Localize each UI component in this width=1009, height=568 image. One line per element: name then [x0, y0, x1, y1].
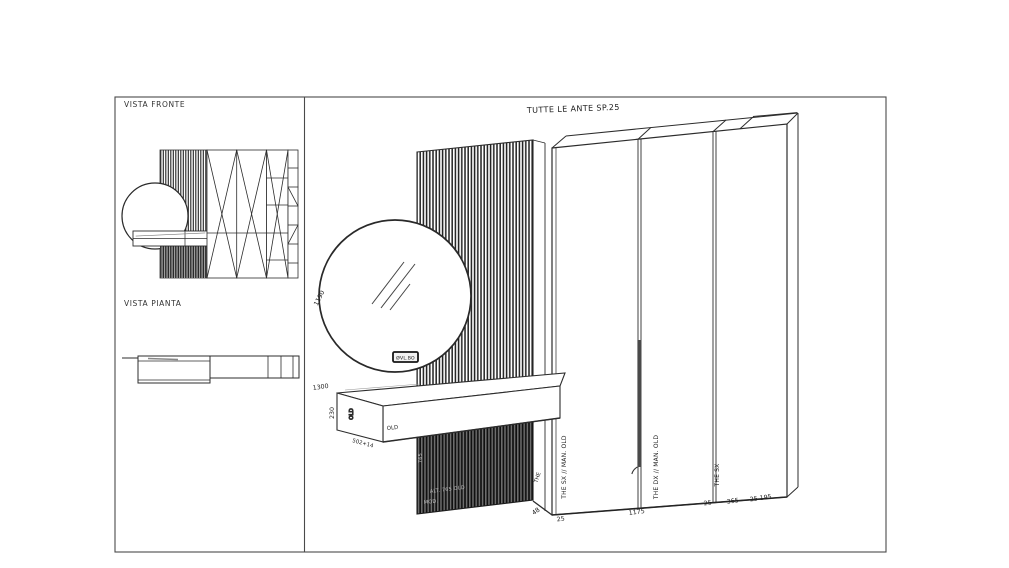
door-left-label: THE SX // MAN. OLD: [561, 435, 568, 500]
drawing-canvas: VISTA FRONTE: [0, 0, 1009, 568]
wardrobe-front-face: [552, 124, 787, 515]
front-slat-lower-shade: [160, 246, 207, 278]
console-front-finish: OLD: [387, 425, 399, 432]
front-view-title: VISTA FRONTE: [124, 100, 185, 109]
door-right-label: THE DX // MAN. OLD: [653, 435, 660, 501]
console-side-finish: OLD: [349, 408, 355, 419]
mirror-circle: [319, 220, 471, 372]
wardrobe: THE SX // MAN. OLD THE DX // MAN. OLD TH…: [531, 113, 798, 524]
front-wardrobe-doors: [207, 150, 298, 278]
plan-view-title: VISTA PIANTA: [124, 299, 182, 308]
door-handle: [637, 340, 641, 467]
side-panel-label: THE SX: [714, 464, 721, 488]
plan-wardrobe-block: [210, 356, 299, 378]
dim-gap-left: 25: [556, 515, 565, 523]
mirror-badge-text: ØVL.BO: [396, 354, 415, 361]
front-console: [133, 231, 208, 246]
mirror-badge: ØVL.BO: [393, 352, 418, 362]
dim-gap-right: 25: [703, 499, 712, 507]
console-thickness-dim: 230: [329, 407, 336, 419]
slat-height-dim: 765: [418, 453, 424, 463]
technical-drawing-page: VISTA FRONTE: [0, 0, 1009, 568]
